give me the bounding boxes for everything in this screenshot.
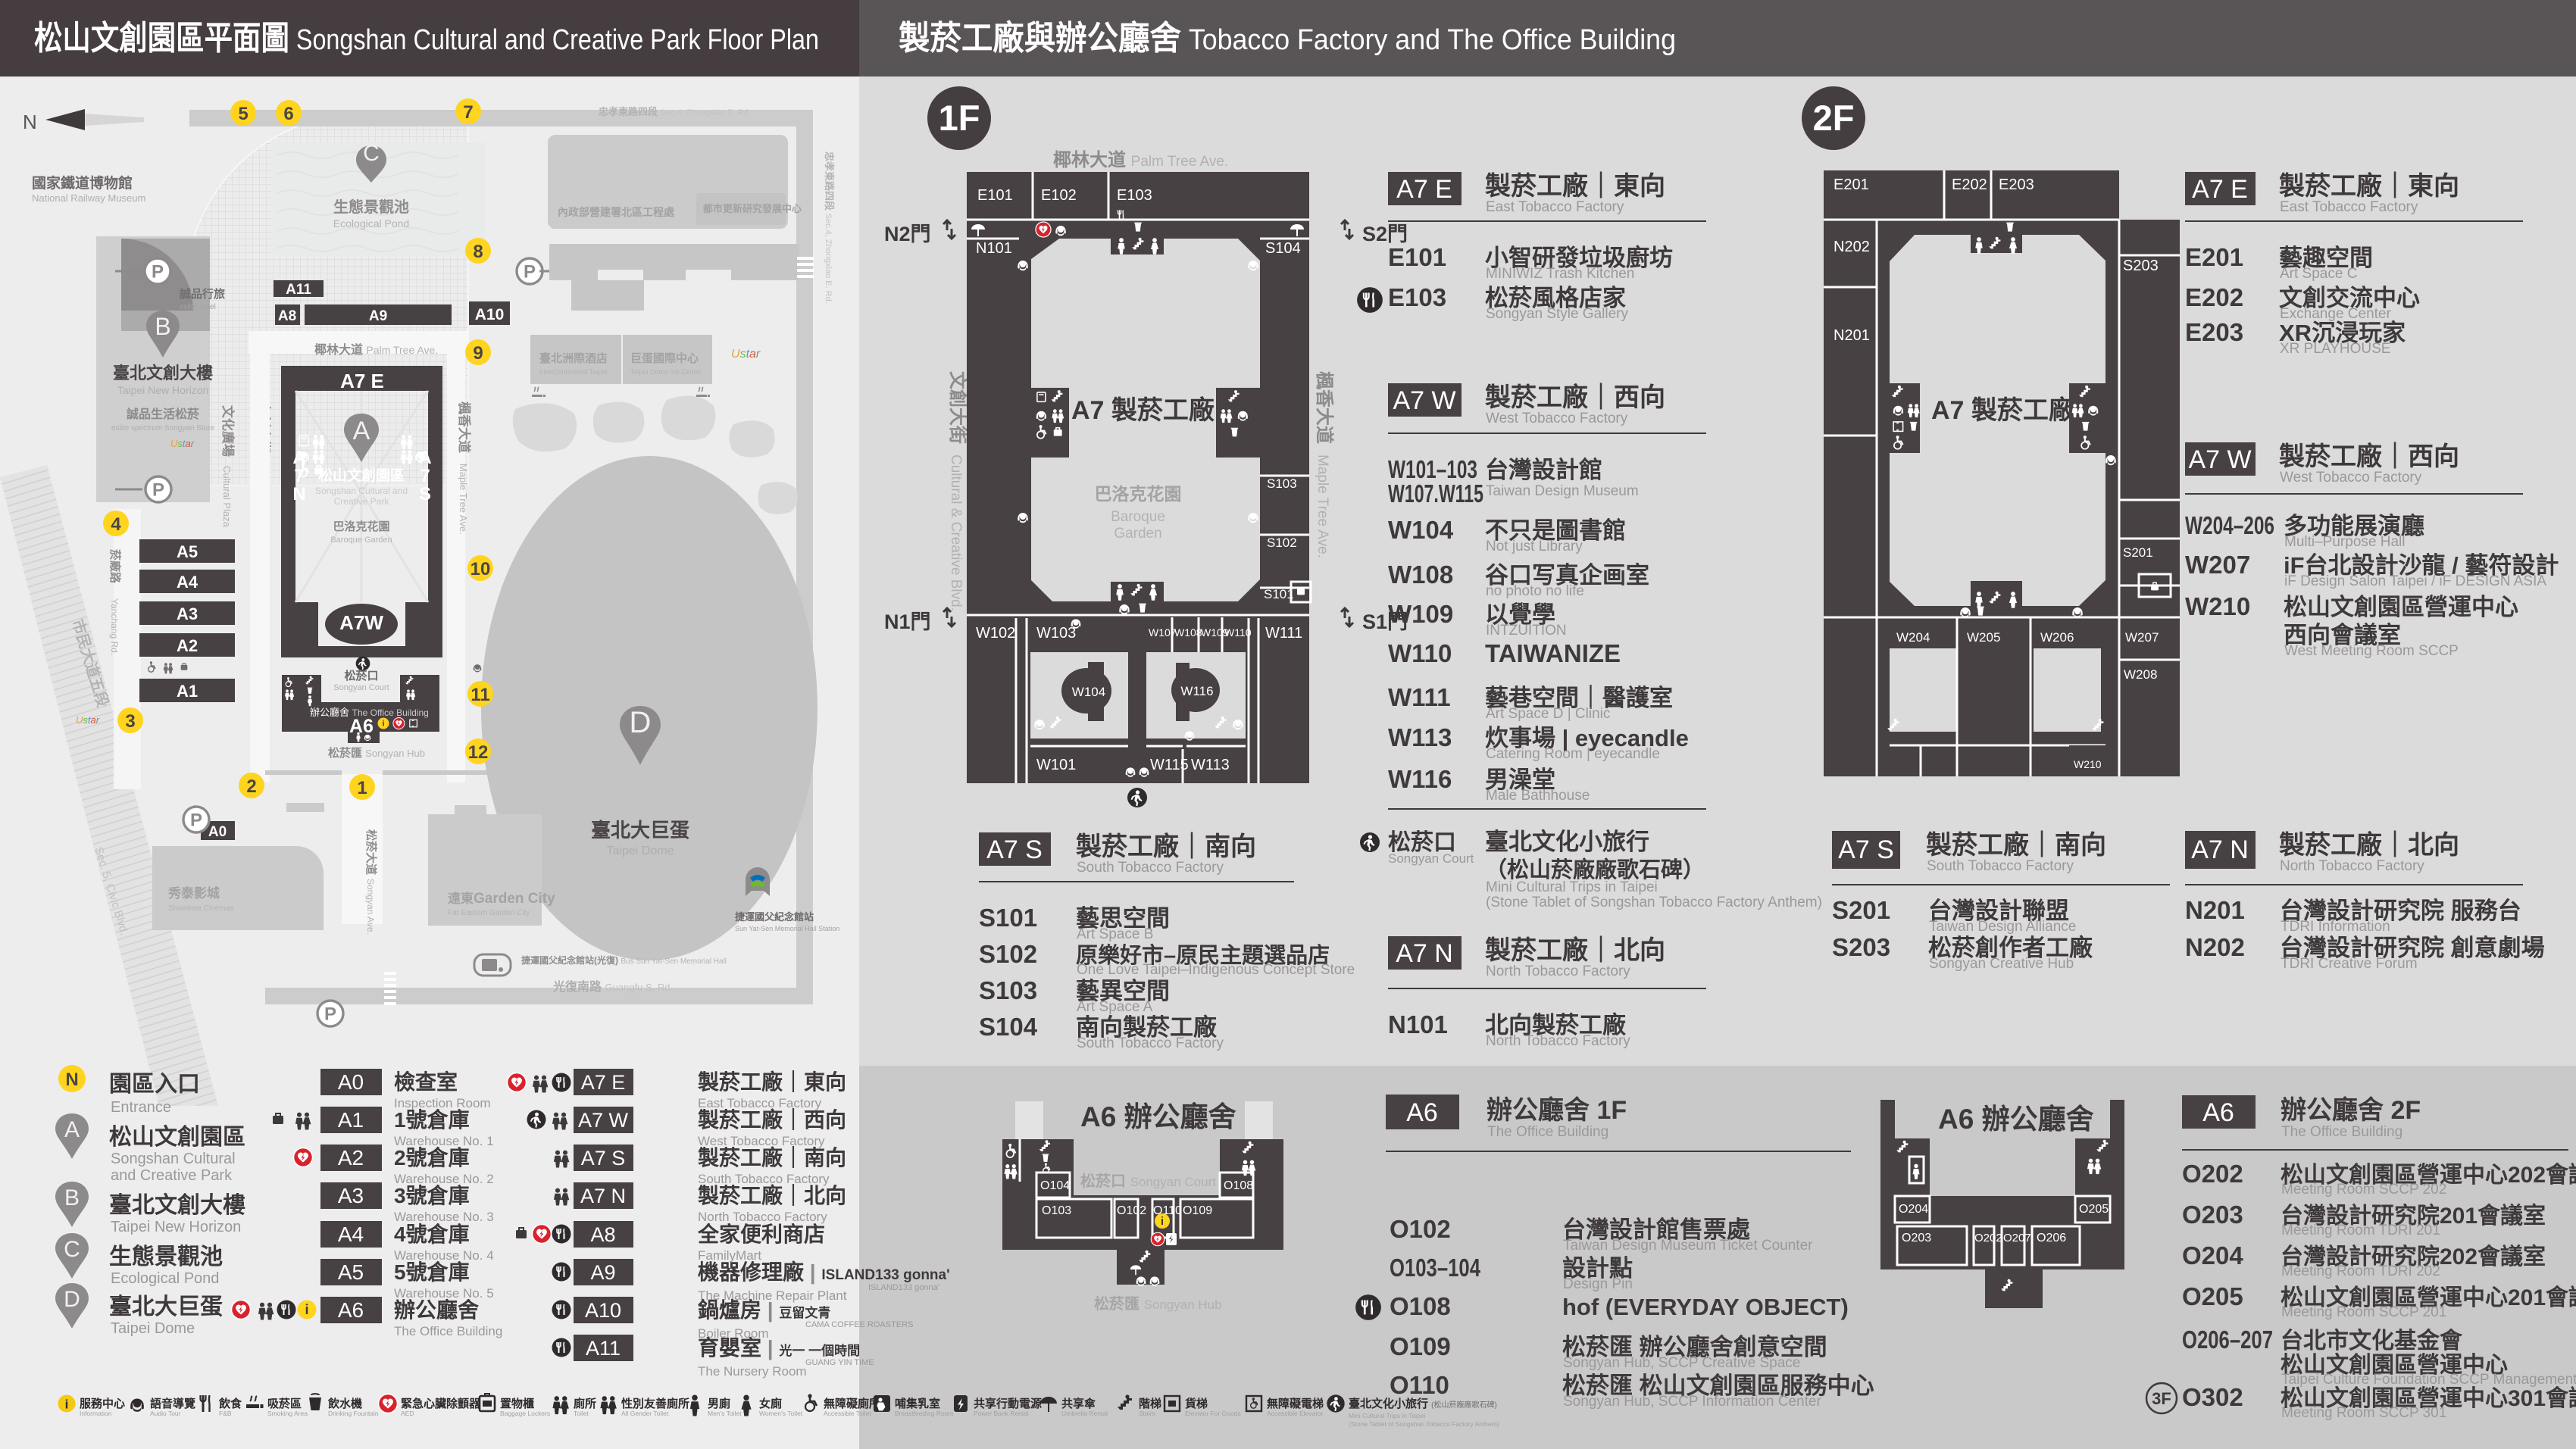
svg-text:服務中心: 服務中心 xyxy=(80,1397,125,1410)
svg-text:Smoking Area: Smoking Area xyxy=(267,1410,308,1417)
svg-text:3: 3 xyxy=(125,711,135,732)
svg-text:F&B: F&B xyxy=(219,1410,232,1417)
svg-text:Mini Cultural Trips in Taipei: Mini Cultural Trips in Taipei xyxy=(1349,1412,1426,1419)
svg-text:E201: E201 xyxy=(2185,243,2243,271)
svg-text:Taipei Dome Intl Center: Taipei Dome Intl Center xyxy=(630,368,702,376)
svg-text:3號倉庫: 3號倉庫 xyxy=(394,1183,470,1207)
svg-text:O104: O104 xyxy=(1040,1179,1070,1192)
svg-text:E101: E101 xyxy=(1388,243,1446,271)
svg-text:A1: A1 xyxy=(177,682,198,701)
svg-text:N: N xyxy=(65,1070,78,1090)
svg-text:A7 W: A7 W xyxy=(1393,386,1455,415)
svg-text:S104: S104 xyxy=(1265,240,1301,257)
svg-text:A: A xyxy=(353,417,370,445)
svg-text:內政部營建署北區工程處: 內政部營建署北區工程處 xyxy=(558,206,675,218)
svg-text:A5: A5 xyxy=(338,1260,364,1284)
svg-text:eslite hotel: eslite hotel xyxy=(180,303,216,311)
svg-text:A2: A2 xyxy=(338,1146,364,1170)
svg-text:Ecological Pond: Ecological Pond xyxy=(111,1270,219,1287)
svg-text:W104: W104 xyxy=(1388,516,1454,544)
svg-text:製菸工廠｜南向: 製菸工廠｜南向 xyxy=(698,1145,846,1170)
svg-text:誠品行旅: 誠品行旅 xyxy=(180,287,225,301)
svg-text:N: N xyxy=(23,111,37,133)
svg-text:楓香大道: 楓香大道 xyxy=(457,401,472,453)
svg-text:A9: A9 xyxy=(590,1261,615,1284)
svg-text:Yanchang Rd.: Yanchang Rd. xyxy=(109,598,120,655)
svg-text:共享傘: 共享傘 xyxy=(1061,1397,1096,1410)
svg-text:製菸工廠｜西向: 製菸工廠｜西向 xyxy=(1485,383,1665,412)
svg-text:松菸口 Songyan Court: 松菸口 Songyan Court xyxy=(1080,1172,1216,1190)
svg-text:4號倉庫: 4號倉庫 xyxy=(394,1222,470,1246)
svg-text:O205: O205 xyxy=(2182,1282,2243,1310)
svg-text:Not just Library: Not just Library xyxy=(1486,539,1583,554)
svg-text:N101: N101 xyxy=(1388,1010,1448,1038)
svg-text:辦公廳舍 2F: 辦公廳舍 2F xyxy=(2281,1095,2421,1125)
svg-text:A7 E: A7 E xyxy=(1396,175,1452,204)
svg-text:製菸工廠｜南向: 製菸工廠｜南向 xyxy=(1076,832,1256,861)
svg-text:性別友善廁所: 性別友善廁所 xyxy=(621,1397,689,1410)
svg-text:Drinking Fountain: Drinking Fountain xyxy=(328,1410,379,1417)
svg-text:Songyan Hub, SCCP Creative Spa: Songyan Hub, SCCP Creative Space xyxy=(1563,1355,1800,1371)
svg-text:O102: O102 xyxy=(1117,1204,1146,1217)
svg-text:Meeting Room SCCP 202: Meeting Room SCCP 202 xyxy=(2281,1182,2446,1198)
svg-text:吸菸區: 吸菸區 xyxy=(267,1397,302,1410)
svg-text:N1門: N1門 xyxy=(884,611,931,633)
svg-text:A5: A5 xyxy=(177,542,198,561)
svg-text:W206: W206 xyxy=(2040,630,2074,645)
svg-text:Songyan Creative Hub: Songyan Creative Hub xyxy=(1929,956,2074,972)
svg-text:O205: O205 xyxy=(2079,1203,2109,1216)
svg-text:Songshan Cultural: Songshan Cultural xyxy=(111,1151,236,1167)
svg-text:3F: 3F xyxy=(2152,1389,2171,1408)
svg-text:階梯: 階梯 xyxy=(1139,1397,1161,1410)
svg-text:6: 6 xyxy=(283,104,293,124)
svg-text:Elevator For Goods: Elevator For Goods xyxy=(1185,1410,1241,1417)
svg-text:S101: S101 xyxy=(1264,587,1294,601)
svg-text:巨蛋國際中心: 巨蛋國際中心 xyxy=(630,351,699,365)
svg-text:Garden: Garden xyxy=(1114,526,1161,542)
svg-text:W116: W116 xyxy=(1180,684,1213,698)
svg-text:East Tobacco Factory: East Tobacco Factory xyxy=(2280,199,2418,215)
svg-text:2: 2 xyxy=(246,776,256,797)
svg-text:S103: S103 xyxy=(1267,476,1297,491)
svg-text:Taiwan Design Museum: Taiwan Design Museum xyxy=(1486,483,1639,499)
svg-text:E203: E203 xyxy=(1999,176,2034,193)
svg-text:O109: O109 xyxy=(1183,1204,1212,1217)
svg-text:製菸工廠｜北向: 製菸工廠｜北向 xyxy=(1485,935,1665,965)
svg-text:生態景觀池: 生態景觀池 xyxy=(333,198,409,216)
svg-text:Ustar: Ustar xyxy=(76,714,100,726)
svg-text:Multi–Purpose Hall: Multi–Purpose Hall xyxy=(2284,534,2405,550)
svg-text:Songyan Ave.: Songyan Ave. xyxy=(365,879,376,935)
svg-text:no photo no life: no photo no life xyxy=(1486,583,1584,599)
svg-text:Sun Yat-Sen Memorial Hall Stat: Sun Yat-Sen Memorial Hall Station xyxy=(735,925,839,932)
svg-text:無障礙電梯: 無障礙電梯 xyxy=(1267,1397,1324,1410)
svg-text:Maple Tree Ave.: Maple Tree Ave. xyxy=(1315,454,1330,558)
svg-text:製菸工廠｜北向: 製菸工廠｜北向 xyxy=(698,1183,846,1207)
svg-text:A7 E: A7 E xyxy=(340,370,384,392)
svg-text:Art Space D | Clinic: Art Space D | Clinic xyxy=(1486,706,1610,722)
svg-text:A7 E: A7 E xyxy=(581,1071,626,1094)
svg-text:Baroque: Baroque xyxy=(1111,509,1165,525)
svg-text:O206–207: O206–207 xyxy=(2182,1326,2273,1354)
svg-text:Meeting Room SCCP 301: Meeting Room SCCP 301 xyxy=(2281,1405,2446,1421)
svg-text:S203: S203 xyxy=(2123,258,2159,274)
svg-text:A4: A4 xyxy=(177,573,199,592)
svg-text:A0: A0 xyxy=(208,824,227,840)
svg-text:製菸工廠｜南向: 製菸工廠｜南向 xyxy=(1926,830,2106,860)
svg-text:2號倉庫: 2號倉庫 xyxy=(394,1145,470,1170)
svg-text:West Tobacco Factory: West Tobacco Factory xyxy=(1486,411,1628,426)
svg-text:Maple Tree Ave.: Maple Tree Ave. xyxy=(458,464,469,535)
svg-text:S102: S102 xyxy=(979,940,1037,968)
svg-text:O102: O102 xyxy=(1390,1215,1451,1243)
svg-text:A7 S: A7 S xyxy=(1838,835,1894,864)
svg-text:A7 S: A7 S xyxy=(986,835,1043,864)
svg-text:Taipei New Horizon: Taipei New Horizon xyxy=(117,384,209,396)
svg-text:C: C xyxy=(64,1237,80,1262)
svg-text:O108: O108 xyxy=(1390,1292,1451,1320)
svg-text:O204: O204 xyxy=(2182,1241,2243,1269)
svg-text:松菸匯 Songyan Hub: 松菸匯 Songyan Hub xyxy=(1094,1294,1222,1313)
svg-text:W110: W110 xyxy=(1388,639,1452,667)
svg-text:iF Design Salon Taipei / iF DE: iF Design Salon Taipei / iF DESIGN ASIA xyxy=(2284,573,2546,589)
svg-text:Breastfeeding Room: Breastfeeding Room xyxy=(895,1410,954,1417)
svg-text:Taipei Dome: Taipei Dome xyxy=(111,1320,195,1337)
svg-text:A6 辦公廳舍: A6 辦公廳舍 xyxy=(1938,1103,2094,1135)
svg-text:W204: W204 xyxy=(1896,630,1930,645)
svg-text:W207: W207 xyxy=(2185,551,2250,579)
svg-text:W101: W101 xyxy=(1036,757,1076,773)
svg-text:N101: N101 xyxy=(976,240,1012,257)
svg-text:楓香大道: 楓香大道 xyxy=(1314,371,1335,444)
svg-text:South Tobacco Factory: South Tobacco Factory xyxy=(1077,860,1224,876)
svg-text:E202: E202 xyxy=(1952,176,1987,193)
svg-text:8: 8 xyxy=(473,242,483,262)
svg-text:國家鐵道博物館: 國家鐵道博物館 xyxy=(32,174,133,192)
svg-text:W210: W210 xyxy=(2185,592,2250,620)
svg-text:W108: W108 xyxy=(1388,561,1453,589)
svg-text:松山文創園區: 松山文創園區 xyxy=(109,1124,245,1150)
svg-text:N202: N202 xyxy=(1834,239,1870,255)
svg-text:5號倉庫: 5號倉庫 xyxy=(394,1260,470,1284)
svg-text:語音導覽: 語音導覽 xyxy=(150,1397,195,1410)
svg-text:辦公廳舍 1F: 辦公廳舍 1F xyxy=(1487,1095,1627,1125)
svg-text:共享行動電源: 共享行動電源 xyxy=(974,1397,1042,1410)
svg-text:製菸工廠｜西向: 製菸工廠｜西向 xyxy=(2279,442,2459,471)
svg-text:緊急心臟除顫器: 緊急心臟除顫器 xyxy=(401,1397,481,1410)
svg-text:O302: O302 xyxy=(2182,1383,2243,1411)
svg-text:W116: W116 xyxy=(1388,765,1452,793)
svg-text:Stairs: Stairs xyxy=(1139,1410,1155,1417)
svg-text:A7 S: A7 S xyxy=(581,1147,626,1170)
svg-text:製菸工廠｜西向: 製菸工廠｜西向 xyxy=(698,1107,846,1132)
svg-text:CAMA COFFEE ROASTERS: CAMA COFFEE ROASTERS xyxy=(805,1320,913,1329)
svg-text:and Creative Park: and Creative Park xyxy=(111,1167,233,1184)
svg-text:A: A xyxy=(64,1117,80,1142)
svg-text:光復南路 Guangfu S. Rd.: 光復南路 Guangfu S. Rd. xyxy=(552,979,673,994)
svg-text:臺北文創大樓: 臺北文創大樓 xyxy=(109,1192,245,1218)
svg-text:松山文創園區: 松山文創園區 xyxy=(318,467,405,484)
svg-text:i: i xyxy=(65,1397,69,1412)
svg-text:Taipei Dome: Taipei Dome xyxy=(607,845,674,857)
svg-text:W204–206: W204–206 xyxy=(2185,511,2274,539)
svg-text:GUANG YIN TIME: GUANG YIN TIME xyxy=(805,1358,874,1367)
svg-text:InterContinental Taipei: InterContinental Taipei xyxy=(539,368,607,376)
svg-text:E202: E202 xyxy=(2185,283,2243,311)
svg-text:W210: W210 xyxy=(2074,758,2102,770)
svg-text:A7 N: A7 N xyxy=(580,1185,626,1207)
svg-text:男廁: 男廁 xyxy=(708,1397,730,1410)
svg-text:W108: W108 xyxy=(1174,626,1202,639)
svg-text:INTZUITION: INTZUITION xyxy=(1486,623,1567,639)
svg-text:W115: W115 xyxy=(1150,757,1189,773)
svg-text:4: 4 xyxy=(111,514,121,535)
svg-text:O103: O103 xyxy=(1042,1204,1071,1217)
svg-text:1F: 1F xyxy=(939,98,980,138)
svg-text:East Tobacco Factory: East Tobacco Factory xyxy=(1486,199,1624,215)
svg-text:O202: O202 xyxy=(2182,1160,2243,1188)
svg-text:National Railway Museum: National Railway Museum xyxy=(32,192,145,204)
svg-text:D: D xyxy=(630,706,652,739)
svg-text:TDRI Creative Forum: TDRI Creative Forum xyxy=(2281,956,2418,972)
svg-text:S2門: S2門 xyxy=(1362,223,1408,245)
svg-text:(Stone Tablet of Songshan Toba: (Stone Tablet of Songshan Tobacco Factor… xyxy=(1349,1420,1499,1428)
svg-text:North Tobacco Factory: North Tobacco Factory xyxy=(1486,963,1630,979)
svg-text:Cultural Plaza: Cultural Plaza xyxy=(221,466,233,528)
svg-text:A6: A6 xyxy=(349,716,374,737)
svg-text:B: B xyxy=(64,1185,80,1210)
svg-text:One Love Taipei–Indigenous Con: One Love Taipei–Indigenous Concept Store xyxy=(1077,962,1355,978)
svg-text:飲水機: 飲水機 xyxy=(327,1397,362,1410)
svg-text:eslite spectrum Songyan Store: eslite spectrum Songyan Store xyxy=(111,424,215,433)
svg-text:W103: W103 xyxy=(1036,625,1076,642)
svg-text:Baggage Lockers: Baggage Lockers xyxy=(500,1410,550,1417)
svg-text:A11: A11 xyxy=(286,282,311,298)
svg-text:TDRI Information: TDRI Information xyxy=(2281,919,2390,935)
svg-text:松山文創園區平面圖 Songshan Cultural an: 松山文創園區平面圖 Songshan Cultural and Creative… xyxy=(34,20,819,57)
svg-text:S201: S201 xyxy=(1832,896,1890,924)
svg-text:廁所: 廁所 xyxy=(574,1397,596,1410)
svg-text:W205: W205 xyxy=(1967,630,2000,645)
svg-text:11: 11 xyxy=(470,685,489,705)
svg-text:A7 製菸工廠: A7 製菸工廠 xyxy=(1931,395,2074,425)
svg-text:9: 9 xyxy=(473,343,483,364)
svg-text:W109: W109 xyxy=(1388,600,1453,628)
svg-text:S203: S203 xyxy=(1832,933,1890,961)
svg-text:Taiwan Design Alliance: Taiwan Design Alliance xyxy=(1929,919,2076,935)
svg-text:O110: O110 xyxy=(1390,1371,1449,1399)
svg-text:A9: A9 xyxy=(369,308,387,324)
svg-text:Taipei New Horizon: Taipei New Horizon xyxy=(111,1219,241,1235)
svg-text:女廁: 女廁 xyxy=(759,1397,782,1410)
svg-text:A8: A8 xyxy=(590,1223,615,1246)
svg-text:D: D xyxy=(64,1287,80,1312)
svg-text:文創大街: 文創大街 xyxy=(947,371,968,444)
svg-text:South Tobacco Factory: South Tobacco Factory xyxy=(1927,858,2074,874)
svg-text:Meeting Room SCCP 201: Meeting Room SCCP 201 xyxy=(2281,1304,2446,1320)
svg-text:製菸工廠｜東向: 製菸工廠｜東向 xyxy=(1485,171,1665,201)
svg-text:椰林大道 Palm Tree Ave.: 椰林大道 Palm Tree Ave. xyxy=(314,342,438,357)
svg-text:Art Space B: Art Space B xyxy=(1077,926,1153,942)
svg-text:臺北大巨蛋: 臺北大巨蛋 xyxy=(591,819,689,842)
svg-text:W111: W111 xyxy=(1388,683,1451,711)
svg-text:Songyan Court: Songyan Court xyxy=(1388,851,1474,866)
svg-text:W102: W102 xyxy=(976,625,1015,642)
svg-text:Ustar: Ustar xyxy=(170,438,195,449)
svg-text:A6: A6 xyxy=(2202,1098,2234,1127)
svg-text:A6 辦公廳舍: A6 辦公廳舍 xyxy=(1080,1101,1236,1132)
svg-text:A2: A2 xyxy=(177,636,198,655)
svg-text:E201: E201 xyxy=(1834,176,1869,193)
svg-text:A7W: A7W xyxy=(339,611,383,634)
svg-text:B: B xyxy=(155,313,170,340)
svg-text:捷運國父紀念館站: 捷運國父紀念館站 xyxy=(735,911,814,923)
svg-text:O203: O203 xyxy=(2182,1201,2243,1229)
svg-text:辦公廳舍: 辦公廳舍 xyxy=(394,1298,479,1322)
svg-text:遠東Garden City: 遠東Garden City xyxy=(448,891,555,907)
svg-text:Creative Park: Creative Park xyxy=(334,496,390,507)
svg-text:置物櫃: 置物櫃 xyxy=(500,1397,534,1410)
svg-text:O206: O206 xyxy=(2037,1232,2066,1244)
svg-text:W107: W107 xyxy=(1149,626,1177,639)
svg-text:台北市文化基金會: 台北市文化基金會 xyxy=(2281,1328,2463,1354)
svg-text:Umbrella Rental: Umbrella Rental xyxy=(1061,1410,1108,1417)
svg-text:全家便利商店: 全家便利商店 xyxy=(697,1222,825,1246)
svg-text:C: C xyxy=(363,141,380,166)
svg-text:Accessible Toilet: Accessible Toilet xyxy=(824,1410,871,1417)
svg-text:Ecological Pond: Ecological Pond xyxy=(333,217,409,230)
svg-text:S104: S104 xyxy=(979,1013,1038,1041)
svg-text:XR PLAYHOUSE: XR PLAYHOUSE xyxy=(2280,341,2390,357)
svg-text:文化廣場: 文化廣場 xyxy=(220,405,236,457)
svg-text:園區入口: 園區入口 xyxy=(109,1072,200,1097)
svg-text:A11: A11 xyxy=(586,1337,621,1360)
svg-text:Art Space C: Art Space C xyxy=(2280,266,2357,282)
svg-text:秀泰影城: 秀泰影城 xyxy=(167,885,220,901)
svg-text:忠孝東路四段 Sec.4, Zhongxiao E. Rd.: 忠孝東路四段 Sec.4, Zhongxiao E. Rd. xyxy=(824,151,835,304)
svg-text:ISLAND133 gonna': ISLAND133 gonna' xyxy=(868,1283,939,1292)
svg-text:臺北文創大樓: 臺北文創大樓 xyxy=(113,364,213,383)
svg-text:N202: N202 xyxy=(2185,933,2245,961)
svg-text:松菸口: 松菸口 xyxy=(344,669,378,682)
svg-text:W113: W113 xyxy=(1388,723,1452,751)
svg-text:Entrance: Entrance xyxy=(111,1099,171,1116)
svg-text:O203: O203 xyxy=(1902,1232,1931,1244)
svg-text:Far Eastern Garden City: Far Eastern Garden City xyxy=(448,909,530,917)
svg-text:Women's Toilet: Women's Toilet xyxy=(759,1410,803,1417)
svg-text:A6: A6 xyxy=(338,1298,364,1322)
svg-text:巴洛克花園: 巴洛克花園 xyxy=(1095,484,1182,504)
svg-text:Cultural & Creative Blvd.: Cultural & Creative Blvd. xyxy=(948,454,964,611)
svg-text:O108: O108 xyxy=(1224,1179,1253,1192)
svg-text:Songyan Hub, SCCP Information: Songyan Hub, SCCP Information Center xyxy=(1563,1394,1821,1410)
svg-text:Ustar: Ustar xyxy=(731,348,761,361)
svg-text:製菸工廠｜東向: 製菸工廠｜東向 xyxy=(698,1070,846,1094)
svg-text:A1: A1 xyxy=(338,1108,364,1132)
svg-text:W113: W113 xyxy=(1191,757,1230,773)
svg-text:Meeting Room TDRI 201: Meeting Room TDRI 201 xyxy=(2281,1223,2440,1238)
svg-text:O204: O204 xyxy=(1899,1203,1928,1216)
svg-text:W111: W111 xyxy=(1265,625,1302,642)
svg-text:A4: A4 xyxy=(338,1223,364,1246)
svg-text:The Office Building: The Office Building xyxy=(394,1324,502,1338)
svg-text:E203: E203 xyxy=(2185,318,2243,346)
svg-text:Information: Information xyxy=(80,1410,112,1417)
svg-text:A7 製菸工廠: A7 製菸工廠 xyxy=(1071,395,1215,425)
svg-text:無障礙廁所: 無障礙廁所 xyxy=(824,1397,880,1410)
svg-text:Power Bank Rental: Power Bank Rental xyxy=(974,1410,1029,1417)
svg-text:A3: A3 xyxy=(338,1184,364,1207)
svg-text:West Tobacco Factory: West Tobacco Factory xyxy=(2280,470,2422,486)
svg-text:7: 7 xyxy=(463,102,473,123)
svg-text:W104: W104 xyxy=(1072,685,1105,699)
svg-text:巴洛克花園: 巴洛克花園 xyxy=(333,520,389,533)
svg-text:Meeting Room TDRI 202: Meeting Room TDRI 202 xyxy=(2281,1263,2440,1279)
svg-text:松山文創園區營運中心: 松山文創園區營運中心 xyxy=(2284,594,2518,620)
svg-text:製菸工廠與辦公廳舍 Tobacco Factory and: 製菸工廠與辦公廳舍 Tobacco Factory and The Office… xyxy=(899,19,1676,57)
svg-text:N201: N201 xyxy=(1834,327,1870,344)
svg-text:A7 N: A7 N xyxy=(2191,835,2249,864)
svg-text:生態景觀池: 生態景觀池 xyxy=(109,1244,223,1269)
svg-text:Baroque Garden: Baroque Garden xyxy=(330,536,392,545)
svg-text:A0: A0 xyxy=(338,1070,364,1094)
svg-text:O103–104: O103–104 xyxy=(1390,1254,1481,1282)
svg-text:Songyan Court: Songyan Court xyxy=(333,683,389,692)
svg-text:West Meeting Room SCCP: West Meeting Room SCCP xyxy=(2284,643,2459,659)
svg-text:Audio Tour: Audio Tour xyxy=(150,1410,181,1417)
svg-text:貨梯: 貨梯 xyxy=(1185,1397,1208,1410)
svg-text:O109: O109 xyxy=(1390,1332,1451,1360)
svg-text:E102: E102 xyxy=(1041,187,1077,204)
svg-text:The Nursery Room: The Nursery Room xyxy=(698,1364,807,1379)
svg-text:菸廠路: 菸廠路 xyxy=(108,549,122,584)
svg-text:製菸工廠｜東向: 製菸工廠｜東向 xyxy=(2279,171,2459,201)
svg-text:A6: A6 xyxy=(1406,1098,1438,1127)
svg-text:Taiwan Design Museum Ticket Co: Taiwan Design Museum Ticket Counter xyxy=(1563,1238,1813,1254)
svg-text:A7 W: A7 W xyxy=(2188,445,2251,474)
svg-text:松菸大道: 松菸大道 xyxy=(364,829,378,875)
svg-text:A7 W: A7 W xyxy=(578,1109,629,1132)
svg-text:Accessible Elevator: Accessible Elevator xyxy=(1267,1410,1323,1417)
svg-text:誠品生活松菸: 誠品生活松菸 xyxy=(127,407,200,421)
svg-text:A10: A10 xyxy=(475,306,505,323)
svg-text:North Tobacco Factory: North Tobacco Factory xyxy=(1486,1033,1630,1049)
svg-text:10: 10 xyxy=(470,559,491,579)
svg-text:The Office Building: The Office Building xyxy=(1487,1124,1608,1140)
svg-text:E101: E101 xyxy=(977,187,1013,204)
svg-text:Taipei Culture Foundation SCCP: Taipei Culture Foundation SCCP Managemen… xyxy=(2281,1372,2576,1388)
svg-text:臺北洲際酒店: 臺北洲際酒店 xyxy=(539,351,608,365)
svg-text:AED: AED xyxy=(401,1410,414,1417)
svg-text:（松山菸廠廠歌石碑）: （松山菸廠廠歌石碑） xyxy=(1485,857,1705,882)
svg-text:Design Pin: Design Pin xyxy=(1563,1276,1633,1292)
svg-text:S101: S101 xyxy=(979,904,1037,932)
svg-text:W110: W110 xyxy=(1224,626,1252,639)
svg-text:A7 N: A7 N xyxy=(1396,939,1453,968)
svg-text:忠孝東路四段 Sec.4, Zhongxiao E. Rd.: 忠孝東路四段 Sec.4, Zhongxiao E. Rd. xyxy=(599,106,751,117)
svg-text:台灣設計館: 台灣設計館 xyxy=(1485,457,1602,483)
svg-text:臺北大巨蛋: 臺北大巨蛋 xyxy=(109,1294,223,1319)
svg-text:W208: W208 xyxy=(2124,667,2157,682)
svg-text:N201: N201 xyxy=(2185,896,2245,924)
svg-text:2F: 2F xyxy=(1813,98,1855,138)
svg-text:S103: S103 xyxy=(979,976,1037,1004)
svg-text:A7 E: A7 E xyxy=(2192,175,2248,204)
svg-text:hof (EVERYDAY OBJECT): hof (EVERYDAY OBJECT) xyxy=(1562,1294,1849,1320)
svg-text:Showtime Cinemas: Showtime Cinemas xyxy=(168,904,233,913)
svg-text:檢查室: 檢查室 xyxy=(394,1070,458,1094)
